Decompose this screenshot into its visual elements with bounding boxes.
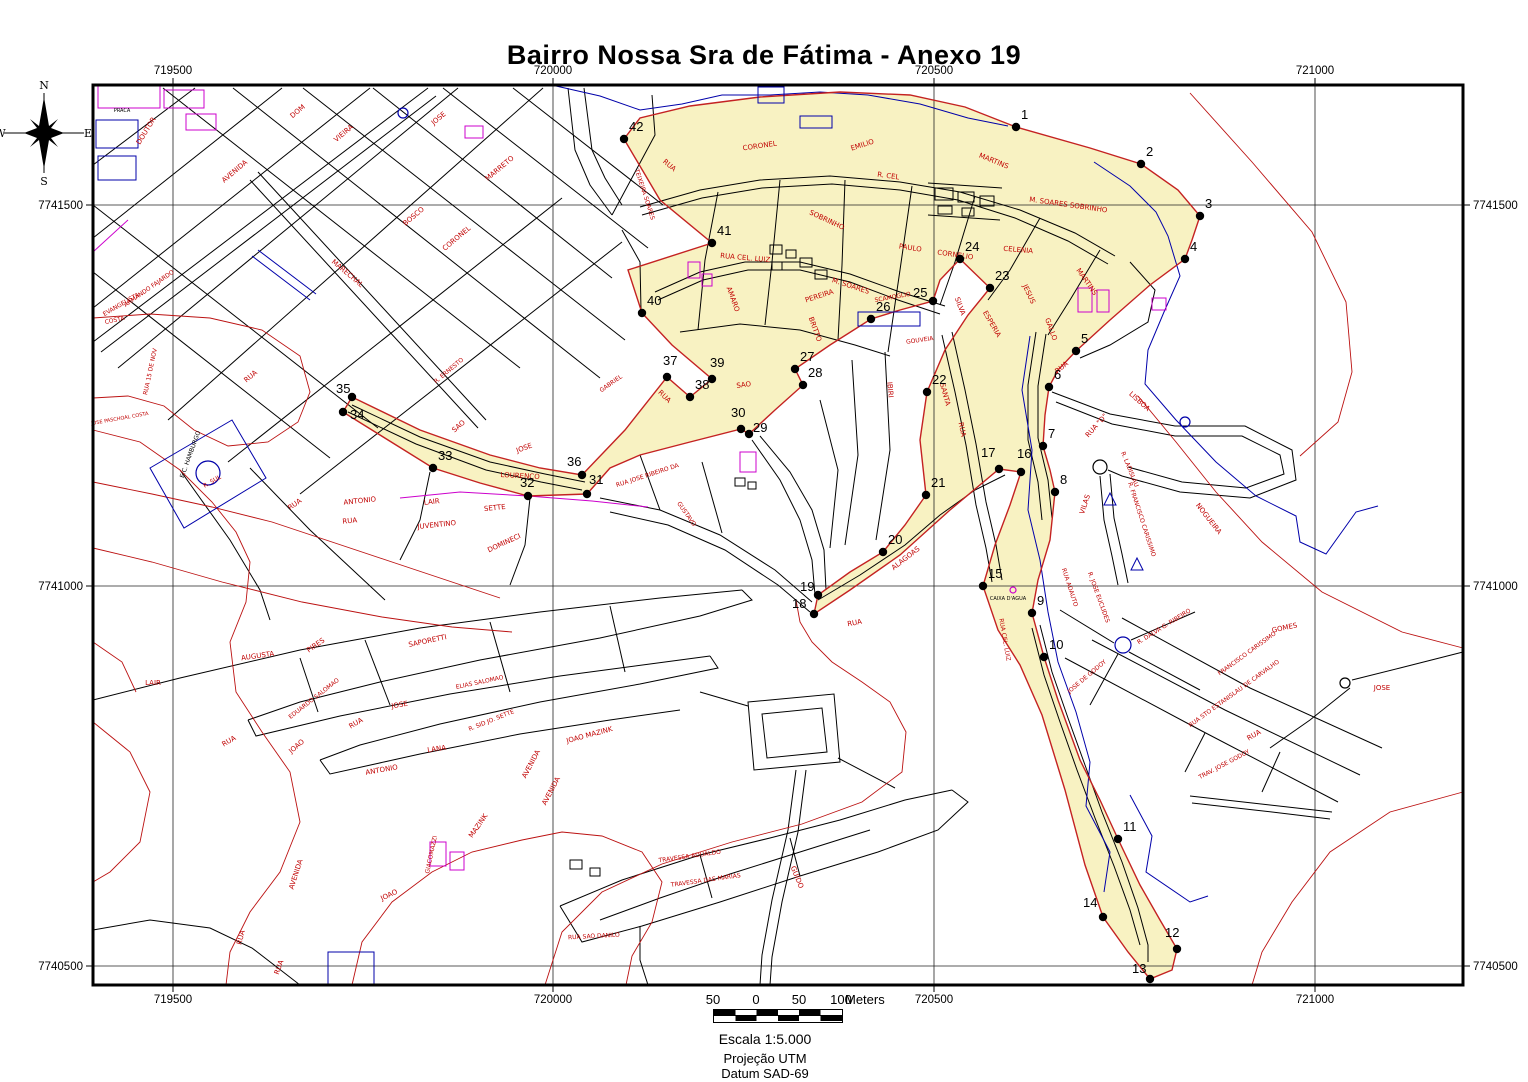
roundabout-circle — [1340, 678, 1350, 688]
boundary-point-label-2: 2 — [1146, 144, 1153, 159]
boundary-point-6 — [1045, 383, 1053, 391]
street-line — [640, 455, 660, 510]
coordinate-label: 719500 — [154, 994, 192, 1006]
datum-text: Datum SAD-69 — [640, 1066, 890, 1081]
street-label: AVENIDA — [540, 775, 562, 806]
street-label: PRACA — [114, 108, 131, 114]
boundary-point-12 — [1173, 945, 1181, 953]
street-line — [584, 88, 622, 205]
boundary-point-36 — [578, 471, 586, 479]
boundary-point-label-29: 29 — [753, 420, 767, 435]
contour-line — [352, 832, 662, 985]
street-label: RUA — [348, 716, 365, 730]
boundary-point-41 — [708, 239, 716, 247]
stream-line — [1104, 493, 1116, 505]
street-line — [610, 512, 810, 612]
contour-line — [1252, 792, 1463, 985]
building-rect — [740, 452, 756, 472]
street-label: LAIR — [145, 679, 161, 687]
boundary-point-27 — [791, 365, 799, 373]
map-canvas: CORONELEMILIOMARTINSRUA CEL. LUIZM. SOAR… — [0, 0, 1528, 1082]
street-label: GUSTAVO — [675, 500, 697, 528]
boundary-point-17 — [995, 465, 1003, 473]
street-label: EDUARDO SALOMAO — [287, 677, 340, 721]
street-line — [700, 692, 748, 706]
boundary-point-label-7: 7 — [1048, 426, 1055, 441]
scale-label-50-right: 50 — [779, 992, 819, 1007]
building-rect — [748, 482, 756, 489]
street-label: JOSE PASCHOAL COSTA — [90, 411, 150, 427]
boundary-point-39 — [708, 375, 716, 383]
street-line — [820, 400, 838, 548]
boundary-point-label-4: 4 — [1190, 239, 1197, 254]
boundary-point-label-42: 42 — [629, 119, 643, 134]
boundary-point-label-11: 11 — [1123, 819, 1137, 834]
street-line — [168, 88, 543, 420]
boundary-point-31 — [583, 490, 591, 498]
compass-e: E — [84, 127, 92, 140]
coordinate-label: 7741000 — [38, 581, 83, 593]
street-line — [118, 88, 458, 368]
street-label: AVENIDA — [220, 158, 249, 184]
boundary-point-21 — [922, 491, 930, 499]
street-label: RUA — [221, 734, 238, 748]
street-label: ANTONIO — [343, 495, 377, 506]
street-label: RUA — [1246, 728, 1263, 742]
boundary-point-label-20: 20 — [888, 532, 902, 547]
street-label: VIEIRA — [332, 123, 355, 144]
street-line — [365, 640, 390, 705]
street-label: GOMES — [1271, 621, 1298, 634]
boundary-point-5 — [1072, 347, 1080, 355]
street-line — [250, 468, 385, 600]
street-line — [180, 470, 270, 620]
boundary-point-label-37: 37 — [663, 353, 677, 368]
street-label: JOAO — [379, 888, 400, 903]
boundary-point-label-18: 18 — [792, 596, 806, 611]
building-rect — [450, 852, 464, 870]
street-label: SILVA — [953, 296, 967, 317]
street-line — [1190, 796, 1332, 812]
coordinate-label: 720500 — [915, 994, 953, 1006]
boundary-point-28 — [799, 381, 807, 389]
street-label: RUA STO ESTANISLAU DE CARVALHO — [1187, 658, 1281, 729]
street-label: SAPORETTI — [408, 633, 448, 649]
boundary-point-10 — [1040, 653, 1048, 661]
boundary-point-3 — [1196, 212, 1204, 220]
building-rect — [98, 86, 160, 108]
building-rect — [328, 952, 374, 984]
coordinate-label: 7741000 — [1473, 581, 1518, 593]
boundary-point-label-33: 33 — [438, 448, 452, 463]
coordinate-label: 720000 — [534, 994, 572, 1006]
boundary-point-38 — [686, 393, 694, 401]
street-line — [702, 462, 722, 533]
street-label: R. FRANCISCO CARISSIMO — [1126, 481, 1157, 557]
boundary-point-14 — [1099, 913, 1107, 921]
boundary-point-19 — [814, 591, 822, 599]
boundary-point-label-24: 24 — [965, 239, 979, 254]
boundary-point-label-21: 21 — [931, 475, 945, 490]
street-label: AUGUSTA — [241, 650, 275, 663]
boundary-point-label-12: 12 — [1165, 925, 1179, 940]
coordinate-label: 7741500 — [38, 200, 83, 212]
street-line — [250, 180, 478, 428]
boundary-point-label-15: 15 — [988, 566, 1002, 581]
street-line — [1270, 688, 1350, 748]
street-label: JOSE — [390, 700, 409, 711]
boundary-point-label-27: 27 — [800, 349, 814, 364]
scale-bar — [713, 1009, 843, 1023]
boundary-point-label-41: 41 — [717, 223, 731, 238]
boundary-point-label-39: 39 — [710, 355, 724, 370]
boundary-point-30 — [737, 425, 745, 433]
boundary-point-label-22: 22 — [932, 372, 946, 387]
street-label: ELIAS SALOMAO — [455, 674, 504, 691]
street-label: RUA — [273, 959, 286, 976]
boundary-point-label-8: 8 — [1060, 472, 1067, 487]
boundary-point-20 — [879, 548, 887, 556]
building-rect — [96, 120, 138, 148]
street-line — [400, 472, 430, 560]
boundary-point-label-19: 19 — [800, 579, 814, 594]
boundary-point-22 — [923, 388, 931, 396]
building-rect — [735, 478, 745, 486]
boundary-point-label-35: 35 — [336, 381, 350, 396]
street-label: MAZINK — [467, 812, 490, 839]
boundary-point-label-26: 26 — [876, 299, 890, 314]
street-label: SETTE — [484, 503, 506, 513]
street-label: AVENIDA — [520, 748, 542, 779]
street-label: R. DALVA G. RIBEIRO — [1136, 607, 1192, 646]
street-line — [1110, 474, 1128, 583]
coordinate-label: 7741500 — [1473, 200, 1518, 212]
boundary-point-29 — [745, 430, 753, 438]
boundary-point-7 — [1039, 442, 1047, 450]
street-label: GABRIEL — [599, 373, 625, 394]
boundary-point-label-9: 9 — [1037, 593, 1044, 608]
street-label: JOSE — [1373, 684, 1390, 692]
building-line — [93, 220, 128, 252]
building-rect — [1152, 298, 1166, 310]
contour-line — [1190, 93, 1352, 456]
boundary-point-label-10: 10 — [1049, 637, 1063, 652]
street-label: SAO — [450, 418, 467, 434]
compass-s: S — [40, 175, 48, 188]
street-label: RUA ADAUTO — [1060, 567, 1079, 608]
contour-line — [93, 642, 136, 692]
stream-line — [1130, 795, 1208, 902]
boundary-point-label-3: 3 — [1205, 196, 1212, 211]
boundary-point-label-32: 32 — [520, 475, 534, 490]
building-rect — [186, 114, 216, 130]
street-label: RUA JOSE RIBEIRO DA — [615, 462, 680, 489]
coordinate-label: 7740500 — [1473, 961, 1518, 973]
boundary-point-25 — [929, 297, 937, 305]
neighborhood-area — [343, 92, 1200, 979]
contour-line — [545, 600, 906, 985]
street-label: LAIR — [424, 497, 441, 507]
street-line — [610, 606, 625, 672]
boundary-point-label-31: 31 — [589, 472, 603, 487]
map-document: CORONELEMILIOMARTINSRUA CEL. LUIZM. SOAR… — [0, 0, 1528, 1082]
boundary-point-label-13: 13 — [1132, 961, 1146, 976]
street-line — [258, 172, 486, 420]
boundary-point-8 — [1051, 488, 1059, 496]
street-line — [101, 96, 436, 352]
roundabout-circle — [1093, 460, 1107, 474]
scale-bar-row-bottom — [714, 1016, 842, 1021]
boundary-point-label-1: 1 — [1021, 107, 1028, 122]
street-label: R. SID JO. SETTE — [468, 708, 516, 733]
boundary-point-label-34: 34 — [350, 407, 364, 422]
street-label: JOAO — [287, 737, 307, 755]
building-rect — [465, 126, 483, 138]
contour-line — [93, 548, 512, 632]
compass-star — [24, 97, 64, 169]
boundary-point-23 — [986, 284, 994, 292]
stream-line — [258, 250, 316, 294]
street-label: JOAO MAZINK — [565, 725, 614, 745]
street-label: RUA — [287, 497, 304, 512]
street-line — [1100, 476, 1118, 585]
coordinate-label: 7740500 — [38, 961, 83, 973]
street-label: DOM — [289, 103, 307, 120]
boundary-point-33 — [429, 464, 437, 472]
street-label: LANA — [427, 744, 447, 755]
boundary-point-label-36: 36 — [567, 454, 581, 469]
roundabout-circle — [398, 108, 408, 118]
street-line — [568, 88, 612, 215]
street-line — [760, 770, 796, 985]
street-label: GIACOMAZZI — [424, 835, 439, 874]
boundary-point-label-23: 23 — [995, 268, 1009, 283]
boundary-point-label-25: 25 — [913, 285, 927, 300]
boundary-point-label-14: 14 — [1083, 895, 1097, 910]
boundary-point-label-6: 6 — [1054, 367, 1061, 382]
street-label: RUA — [342, 516, 358, 526]
street-line — [1192, 803, 1330, 819]
map-title: Bairro Nossa Sra de Fátima - Anexo 19 — [0, 40, 1528, 71]
street-line — [248, 590, 752, 720]
street-label: E.C. HAMBURGO — [179, 430, 203, 479]
boundary-point-18 — [810, 610, 818, 618]
street-label: BOSCO — [402, 205, 427, 228]
boundary-point-label-38: 38 — [695, 377, 709, 392]
street-line — [1129, 652, 1200, 690]
boundary-point-26 — [867, 315, 875, 323]
scale-label-50-left: 50 — [693, 992, 733, 1007]
boundary-point-34 — [339, 408, 347, 416]
boundary-point-label-16: 16 — [1017, 446, 1031, 461]
contour-line — [93, 430, 300, 985]
boundary-point-1 — [1012, 123, 1020, 131]
street-label: IBIRI — [885, 382, 894, 398]
street-label: JOSE — [514, 442, 533, 455]
street-label: GUIDO — [789, 865, 805, 890]
roundabout-circle — [1115, 637, 1131, 653]
boundary-point-11 — [1114, 835, 1122, 843]
street-line — [1262, 752, 1280, 792]
street-label: CORONEL — [441, 224, 473, 252]
boundary-point-label-40: 40 — [647, 293, 661, 308]
projection-text: Projeção UTM — [640, 1051, 890, 1066]
boundary-point-42 — [620, 135, 628, 143]
street-line — [560, 790, 968, 942]
street-line — [748, 694, 840, 770]
street-line — [1056, 402, 1284, 488]
street-label: DOMINECI — [486, 532, 522, 554]
street-line — [93, 88, 428, 342]
street-line — [560, 790, 952, 906]
scale-label-0: 0 — [736, 992, 776, 1007]
coordinate-label: 721000 — [1296, 994, 1334, 1006]
scale-unit-label: Meters — [845, 992, 885, 1007]
street-line — [1352, 652, 1463, 680]
building-rect — [164, 90, 204, 108]
street-label: TRAV. JOSE GODOY — [1197, 748, 1251, 781]
boundary-point-9 — [1028, 609, 1036, 617]
boundary-point-40 — [638, 309, 646, 317]
street-label: RUA 15 DE NOV — [142, 347, 159, 396]
street-line — [876, 352, 890, 540]
street-label: R. JOSE EUCLIDES — [1086, 571, 1111, 624]
street-label: RUA "D" — [1084, 412, 1109, 439]
scale-text: Escala 1:5.000 — [640, 1031, 890, 1047]
street-label: JOSE — [429, 110, 448, 127]
boundary-point-37 — [663, 373, 671, 381]
boundary-point-2 — [1137, 160, 1145, 168]
street-label: GOUVEIA — [906, 335, 935, 346]
boundary-point-13 — [1146, 975, 1154, 983]
street-line — [762, 708, 827, 758]
street-line — [1092, 640, 1360, 775]
street-label: R. ERNESTO — [433, 356, 465, 385]
street-label: RUA SAO DANILO — [568, 932, 620, 942]
street-line — [845, 360, 858, 545]
street-label: RUA — [847, 618, 863, 628]
street-label: LISBOA — [1127, 390, 1151, 413]
street-label: MARRETO — [484, 154, 516, 183]
street-line — [1185, 733, 1205, 772]
street-line — [752, 440, 815, 595]
boundary-point-label-17: 17 — [981, 445, 995, 460]
street-label: MARECHAL — [330, 258, 365, 289]
street-label: TRAVESSA ADUALDO — [657, 849, 721, 865]
compass-rose: N S E W — [0, 79, 92, 188]
contour-line — [93, 722, 150, 882]
street-label: R. SUL — [202, 474, 223, 490]
boundary-point-label-5: 5 — [1081, 331, 1088, 346]
street-label: RUA — [235, 929, 247, 946]
building-rect — [590, 868, 600, 876]
boundary-point-16 — [1017, 468, 1025, 476]
stream-line — [1131, 558, 1143, 570]
boundary-point-label-28: 28 — [808, 365, 822, 380]
street-line — [93, 920, 300, 985]
compass-n: N — [39, 79, 49, 92]
boundary-point-32 — [524, 492, 532, 500]
boundary-point-label-30: 30 — [731, 405, 745, 420]
street-label: VILAS — [1078, 493, 1092, 515]
building-rect — [570, 860, 582, 869]
boundary-point-4 — [1181, 255, 1189, 263]
building-rect — [98, 156, 136, 180]
street-label: AVENIDA — [288, 858, 305, 890]
street-line — [233, 88, 600, 378]
street-label: NOGUEIRA — [1194, 502, 1223, 536]
boundary-point-24 — [956, 255, 964, 263]
boundary-point-15 — [979, 582, 987, 590]
street-label: CAIXA D'AGUA — [990, 596, 1027, 602]
compass-w: W — [0, 127, 6, 140]
stream-line — [252, 256, 310, 300]
street-label: RUA — [242, 369, 259, 385]
street-label: JUVENTINO — [416, 519, 457, 531]
